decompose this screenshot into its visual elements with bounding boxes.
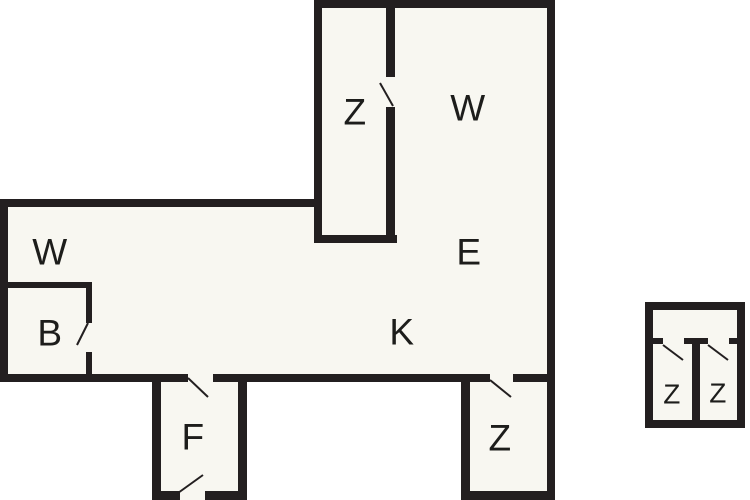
room-label: B <box>37 313 62 354</box>
room-label: Z <box>343 92 366 133</box>
room-label: E <box>456 232 481 273</box>
wall-segment <box>729 338 737 344</box>
room-label: K <box>389 312 414 353</box>
wall-segment <box>314 235 397 243</box>
floor-plan: ZWWEBKFZZZ <box>0 0 750 500</box>
wall-segment <box>152 491 180 500</box>
wall-segment <box>386 8 395 77</box>
wall-segment <box>152 374 161 500</box>
wall-segment <box>213 374 490 382</box>
room-label: F <box>181 417 204 458</box>
wall-segment <box>0 199 318 207</box>
room-label: W <box>450 88 485 129</box>
floor-area <box>0 199 555 382</box>
wall-segment <box>547 0 555 500</box>
wall-segment <box>205 491 247 500</box>
wall-segment <box>86 352 92 382</box>
room-label: Z <box>709 378 727 409</box>
room-label: Z <box>488 418 511 459</box>
wall-segment <box>461 374 470 500</box>
wall-segment <box>86 282 92 323</box>
room-label: Z <box>663 379 681 410</box>
wall-segment <box>386 107 395 243</box>
wall-segment <box>645 302 745 310</box>
wall-segment <box>737 302 745 428</box>
wall-segment <box>645 302 653 428</box>
wall-segment <box>692 338 700 428</box>
wall-segment <box>513 374 555 382</box>
floor-areas-layer <box>0 0 745 500</box>
wall-segment <box>653 338 663 344</box>
wall-segment <box>0 199 8 382</box>
wall-segment <box>238 374 247 500</box>
wall-segment <box>0 282 92 288</box>
wall-segment <box>461 491 555 500</box>
wall-segment <box>314 0 555 8</box>
room-label: W <box>32 232 67 273</box>
plan-canvas: ZWWEBKFZZZ <box>0 0 750 500</box>
